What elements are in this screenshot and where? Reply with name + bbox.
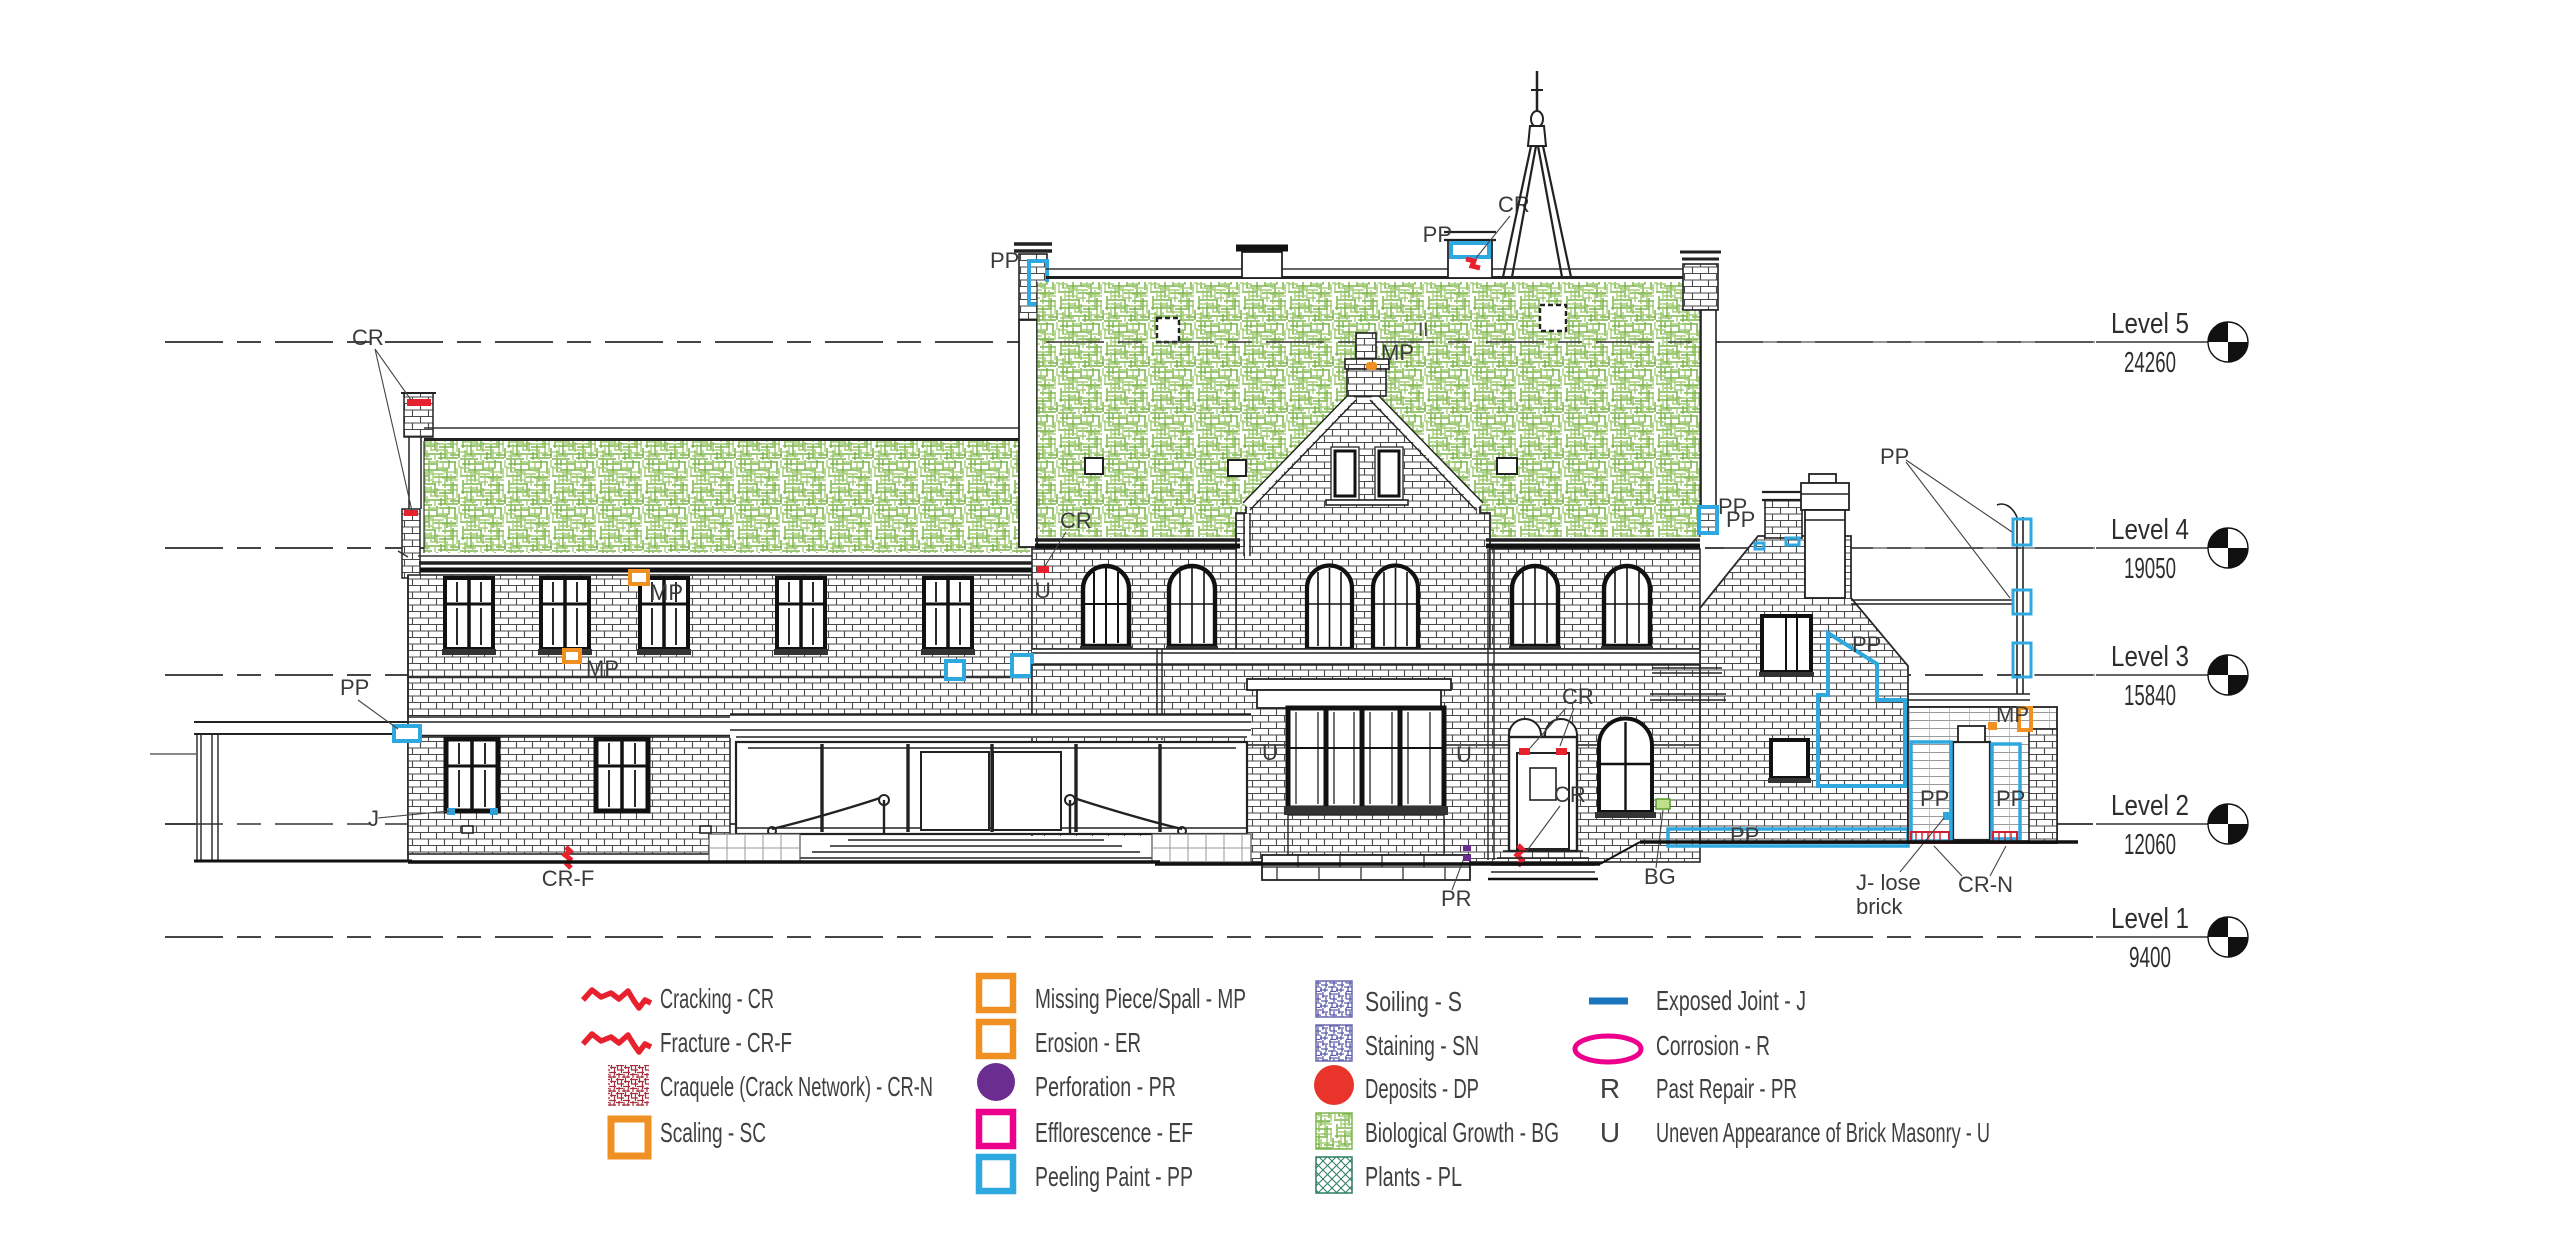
svg-text:Uneven Appearance of Brick Mas: Uneven Appearance of Brick Masonry - U — [1656, 1117, 1990, 1148]
svg-text:Past Repair - PR: Past Repair - PR — [1656, 1073, 1797, 1104]
svg-text:U: U — [1262, 740, 1278, 765]
svg-text:CR: CR — [1554, 782, 1586, 807]
svg-text:PP: PP — [1996, 786, 2025, 811]
svg-text:PP: PP — [990, 248, 1019, 273]
svg-text:MP: MP — [1996, 702, 2029, 727]
svg-text:CR-N: CR-N — [1958, 872, 2013, 897]
svg-text:Fracture - CR-F: Fracture - CR-F — [660, 1027, 792, 1058]
svg-text:PP: PP — [1718, 494, 1747, 519]
svg-text:Level 4: Level 4 — [2111, 514, 2189, 546]
svg-text:Cracking - CR: Cracking - CR — [660, 983, 774, 1014]
svg-text:Deposits - DP: Deposits - DP — [1365, 1073, 1479, 1104]
svg-text:9400: 9400 — [2129, 942, 2171, 974]
svg-text:Plants - PL: Plants - PL — [1365, 1161, 1462, 1192]
svg-text:J- lose: J- lose — [1856, 870, 1921, 895]
svg-text:Corrosion - R: Corrosion - R — [1656, 1030, 1770, 1061]
svg-text:U: U — [1035, 578, 1051, 603]
svg-text:J: J — [368, 806, 379, 831]
svg-text:CR: CR — [352, 325, 384, 350]
svg-text:U: U — [1456, 742, 1472, 767]
svg-text:MP: MP — [650, 580, 683, 605]
svg-text:MP: MP — [1381, 340, 1414, 365]
svg-text:brick: brick — [1856, 894, 1903, 919]
svg-text:Erosion - ER: Erosion - ER — [1035, 1027, 1141, 1058]
svg-text:Staining - SN: Staining - SN — [1365, 1030, 1479, 1061]
svg-text:PP: PP — [1920, 786, 1949, 811]
svg-text:PP: PP — [340, 675, 369, 700]
svg-text:Level 2: Level 2 — [2111, 790, 2189, 822]
svg-text:CR: CR — [1562, 684, 1594, 709]
svg-text:PP: PP — [1423, 222, 1452, 247]
svg-text:19050: 19050 — [2124, 553, 2176, 585]
svg-text:Level 1: Level 1 — [2111, 903, 2189, 935]
svg-text:Craquele (Crack Network) - CR-: Craquele (Crack Network) - CR-N — [660, 1071, 933, 1102]
svg-text:PP: PP — [1880, 444, 1909, 469]
svg-text:PR: PR — [1441, 886, 1472, 911]
svg-text:Level 5: Level 5 — [2111, 308, 2189, 340]
svg-text:U: U — [1600, 1117, 1620, 1148]
svg-text:Peeling Paint - PP: Peeling Paint - PP — [1035, 1161, 1193, 1192]
svg-text:Soiling - S: Soiling - S — [1365, 986, 1462, 1017]
svg-text:Perforation - PR: Perforation - PR — [1035, 1071, 1176, 1102]
svg-text:Exposed Joint - J: Exposed Joint - J — [1656, 985, 1806, 1016]
svg-text:15840: 15840 — [2124, 680, 2176, 712]
svg-text:Scaling - SC: Scaling - SC — [660, 1117, 766, 1148]
svg-text:BG: BG — [1644, 864, 1676, 889]
svg-text:Biological Growth - BG: Biological Growth - BG — [1365, 1117, 1559, 1148]
svg-text:PP: PP — [1730, 823, 1759, 848]
svg-text:12060: 12060 — [2124, 829, 2176, 861]
svg-text:CR: CR — [1060, 508, 1092, 533]
svg-text:CR-F: CR-F — [542, 866, 595, 891]
svg-text:PP: PP — [1852, 632, 1881, 657]
svg-text:Efflorescence - EF: Efflorescence - EF — [1035, 1117, 1193, 1148]
svg-text:Missing Piece/Spall - MP: Missing Piece/Spall - MP — [1035, 983, 1246, 1014]
svg-text:24260: 24260 — [2124, 347, 2176, 379]
svg-text:R: R — [1600, 1073, 1620, 1104]
svg-text:II: II — [1418, 320, 1429, 341]
svg-text:Level 3: Level 3 — [2111, 641, 2189, 673]
